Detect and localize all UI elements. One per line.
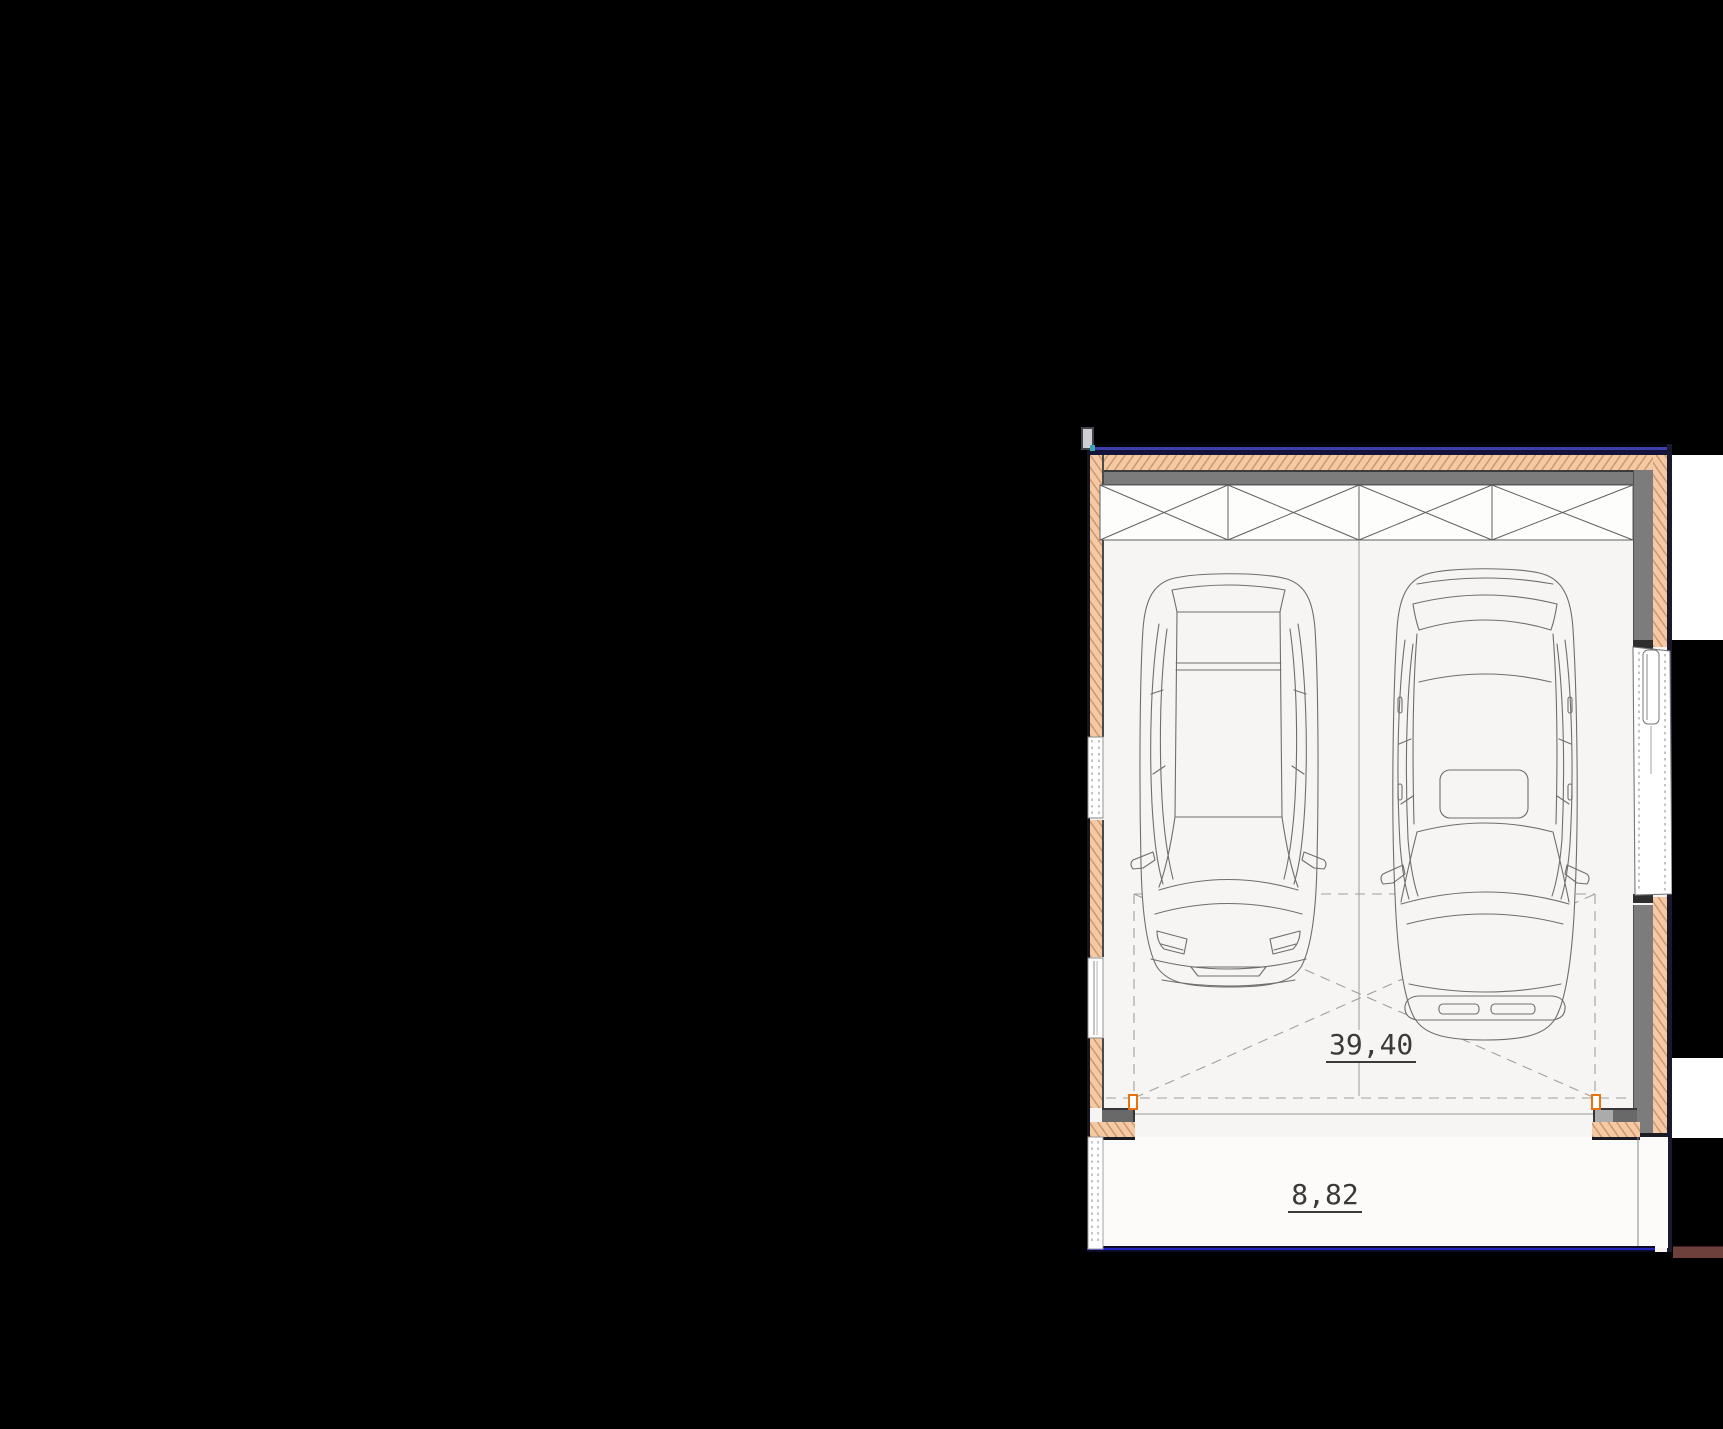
exterior-patch-upper-right	[1672, 455, 1723, 640]
canvas: 39,40 8,82	[0, 0, 1723, 1429]
boundary-fence-strip	[1088, 1137, 1103, 1249]
garage-area-label: 39,40	[1326, 1030, 1416, 1063]
exterior-patch-lower-right	[1672, 1058, 1723, 1138]
window-lower	[1088, 958, 1103, 1038]
driveway-area-label: 8,82	[1288, 1180, 1362, 1213]
ground-bar	[1673, 1246, 1723, 1258]
lintel-x-panels	[1100, 485, 1633, 540]
car-top-view-right	[1381, 569, 1589, 1040]
plan-linework	[1087, 444, 1672, 1252]
floor-plan: 39,40 8,82	[1087, 444, 1672, 1252]
car-top-view-left	[1131, 574, 1326, 987]
side-entry-door	[1633, 647, 1672, 895]
door-jamb-marker-left	[1129, 1095, 1137, 1109]
window-upper	[1088, 737, 1103, 818]
door-jamb-marker-right	[1592, 1095, 1600, 1109]
corner-accent-dot	[1090, 445, 1095, 451]
